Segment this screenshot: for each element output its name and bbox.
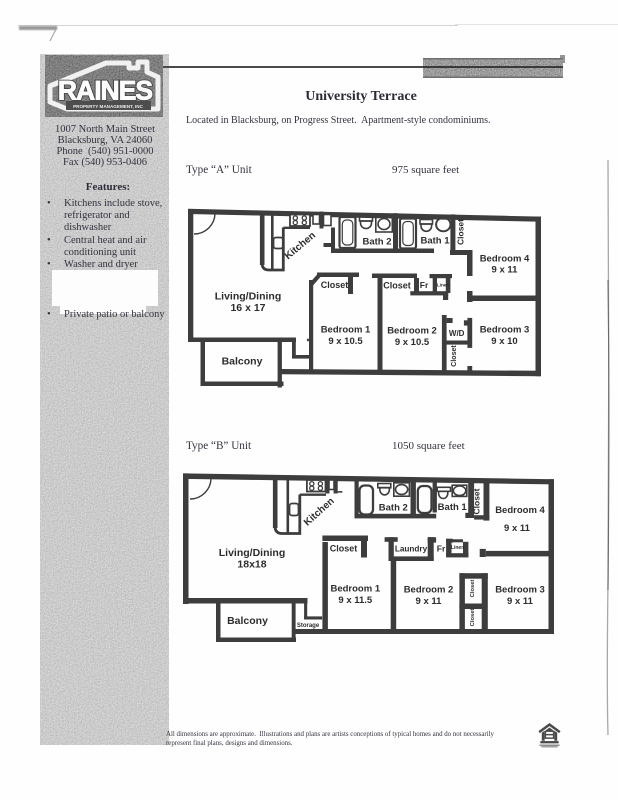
svg-text:Bedroom 1: Bedroom 1 [330, 584, 380, 595]
svg-text:Bedroom 2: Bedroom 2 [387, 326, 437, 337]
svg-text:Closet: Closet [472, 488, 482, 514]
svg-text:Closet: Closet [330, 544, 358, 554]
svg-text:9 x 11: 9 x 11 [416, 596, 443, 607]
svg-text:9 x 10: 9 x 10 [491, 336, 517, 347]
svg-text:W/D: W/D [449, 329, 465, 338]
svg-text:Bath 1: Bath 1 [438, 502, 468, 513]
svg-text:Bedroom 2: Bedroom 2 [404, 585, 454, 596]
svg-text:Balcony: Balcony [222, 356, 263, 368]
svg-text:Laundry: Laundry [395, 545, 428, 554]
svg-text:9 x 11: 9 x 11 [504, 523, 531, 534]
svg-text:Kitchen: Kitchen [283, 230, 318, 262]
svg-text:Closet: Closet [470, 609, 476, 627]
svg-text:Bath 2: Bath 2 [379, 503, 408, 514]
svg-text:Fr: Fr [420, 280, 429, 290]
svg-text:Balcony: Balcony [227, 615, 268, 627]
svg-text:Kitchen: Kitchen [302, 496, 337, 529]
svg-text:9 x 10.5: 9 x 10.5 [328, 336, 363, 347]
svg-text:9 x 11: 9 x 11 [492, 265, 519, 276]
svg-text:Bath 1: Bath 1 [420, 236, 450, 247]
svg-text:Bedroom 3: Bedroom 3 [495, 585, 545, 596]
svg-text:Fr: Fr [437, 544, 446, 554]
svg-text:RAINES: RAINES [58, 76, 152, 106]
svg-text:9 x 11: 9 x 11 [507, 596, 534, 607]
svg-text:9 x 10.5: 9 x 10.5 [395, 337, 430, 348]
svg-text:Bath 2: Bath 2 [362, 237, 391, 248]
svg-text:Bedroom 4: Bedroom 4 [495, 505, 545, 516]
svg-text:Living/Dining: Living/Dining [215, 291, 282, 303]
svg-text:Storage: Storage [297, 623, 320, 629]
svg-text:Bedroom 3: Bedroom 3 [480, 325, 530, 336]
svg-text:Closet: Closet [383, 281, 411, 291]
svg-text:Closet: Closet [456, 219, 466, 245]
svg-text:Closet: Closet [451, 345, 458, 367]
svg-text:Bedroom 4: Bedroom 4 [480, 254, 530, 265]
svg-text:Bedroom 1: Bedroom 1 [321, 325, 371, 336]
svg-text:9 x 11.5: 9 x 11.5 [338, 595, 373, 606]
svg-text:Linen: Linen [437, 283, 449, 288]
svg-text:Closet: Closet [321, 280, 349, 290]
svg-text:Living/Dining: Living/Dining [219, 547, 286, 559]
svg-text:18x18: 18x18 [237, 559, 266, 571]
svg-text:Closet: Closet [470, 580, 476, 598]
svg-text:16 x 17: 16 x 17 [230, 302, 265, 314]
svg-text:Linen: Linen [451, 545, 464, 551]
